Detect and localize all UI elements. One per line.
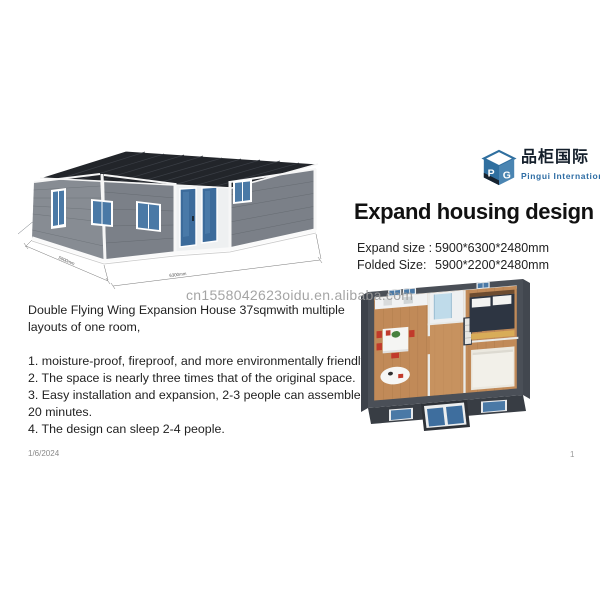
expand-size-label: Expand size :	[357, 240, 435, 257]
pg-cube-logo-icon: P G	[480, 148, 518, 190]
folded-size-label: Folded Size:	[357, 257, 435, 274]
size-specs: Expand size : 5900*6300*2480mm Folded Si…	[357, 240, 549, 274]
watermark-text: cn1558042623oidu.en.alibaba.com	[186, 287, 413, 303]
footer-date: 1/6/2024	[28, 449, 59, 458]
folded-size-row: Folded Size: 5900*2200*2480mm	[357, 257, 549, 274]
logo-name-english: Pingui International	[521, 171, 600, 181]
page-number: 1	[570, 450, 574, 459]
description-block: Double Flying Wing Expansion House 37sqm…	[28, 302, 376, 438]
expand-size-row: Expand size : 5900*6300*2480mm	[357, 240, 549, 257]
floor-plan-render	[353, 278, 600, 473]
shower-frame-left	[434, 295, 435, 320]
company-logo: P G 品柜国际 Pingui International	[480, 148, 600, 190]
bedroom-dark-bed	[470, 290, 515, 333]
double-glass-doors	[175, 182, 230, 252]
entry-doors	[421, 400, 470, 431]
page-title: Expand housing design	[354, 199, 594, 225]
logo-monogram-p: P	[488, 169, 495, 180]
feature-item-1: 1. moisture-proof, fireproof, and more e…	[28, 353, 376, 370]
shower-frame-right	[451, 293, 452, 318]
expand-size-value: 5900*6300*2480mm	[435, 240, 549, 257]
shower-glass	[434, 293, 452, 319]
right-exterior-wall	[523, 279, 530, 399]
house-isometric-drawing: 5900mm 6300mm	[18, 138, 328, 303]
left-exterior-wall	[361, 292, 368, 412]
slide: { "logo": { "monogram_p": "P", "monogram…	[0, 0, 600, 600]
feature-item-3: 3. Easy installation and expansion, 2-3 …	[28, 387, 376, 421]
description-intro: Double Flying Wing Expansion House 37sqm…	[28, 302, 376, 336]
logo-monogram-g: G	[503, 171, 511, 182]
dimension-label-left: 5900mm	[58, 255, 76, 266]
feature-item-4: 4. The design can sleep 2-4 people.	[28, 421, 376, 438]
feature-item-2: 2. The space is nearly three times that …	[28, 370, 376, 387]
folded-size-value: 5900*2200*2480mm	[435, 257, 549, 274]
bedroom-white-bed	[471, 346, 514, 390]
logo-name-chinese: 品柜国际	[521, 148, 600, 168]
